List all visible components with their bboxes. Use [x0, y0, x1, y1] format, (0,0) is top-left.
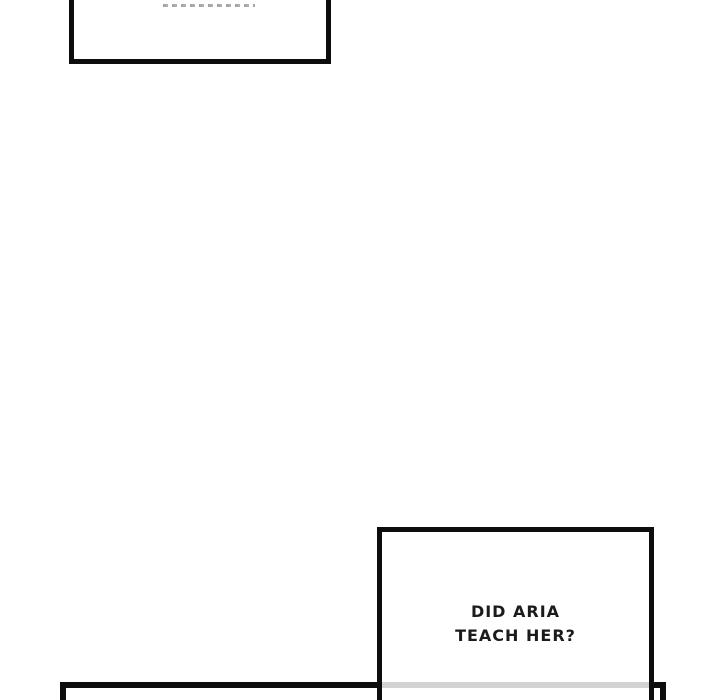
comic-page: DID ARIA TEACH HER?	[0, 0, 720, 700]
speech-line-2: TEACH HER?	[382, 624, 649, 648]
speech-bubble-top	[69, 0, 331, 64]
speech-bubble-text: DID ARIA TEACH HER?	[382, 600, 649, 648]
clipped-text-remnant	[163, 4, 255, 7]
speech-bubble-right: DID ARIA TEACH HER?	[377, 527, 654, 700]
speech-line-1: DID ARIA	[382, 600, 649, 624]
